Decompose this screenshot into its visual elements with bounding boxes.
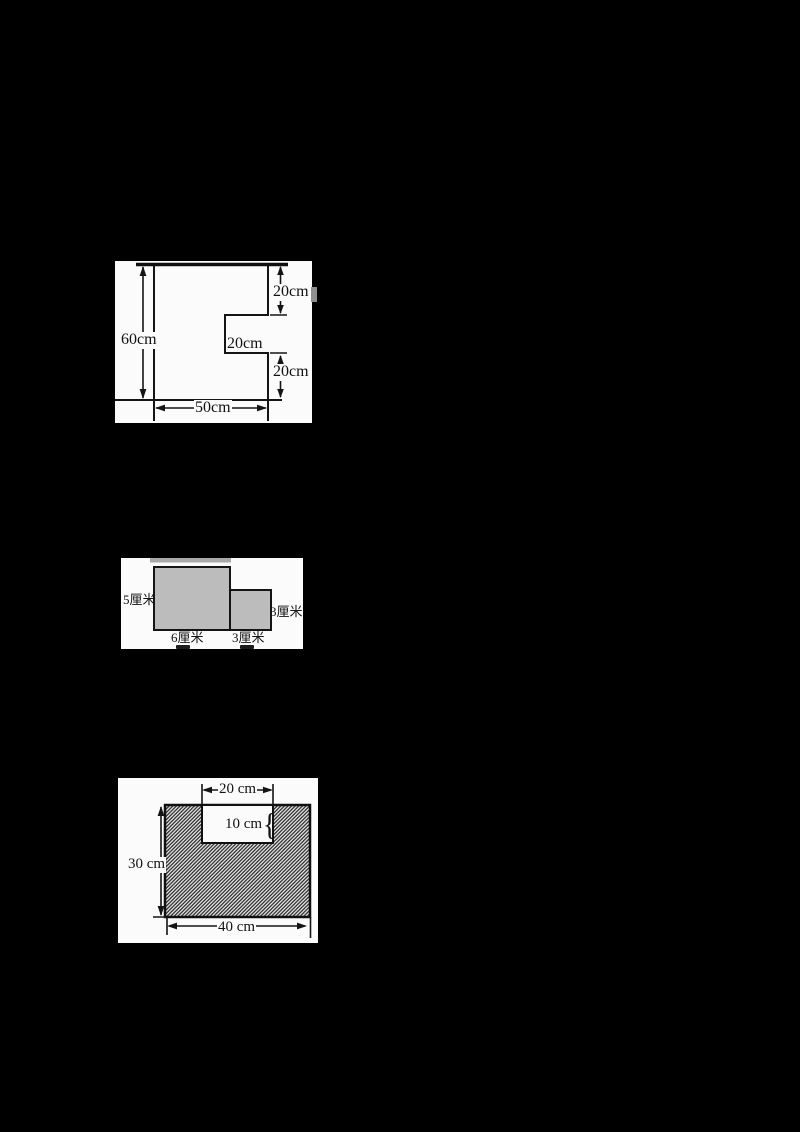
figure2-small-rect xyxy=(230,590,271,630)
figure3-label-40cm: 40 cm xyxy=(217,920,256,936)
figure1-label-20cm-top: 20cm xyxy=(272,284,310,301)
figure3-panel: 20 cm 10 cm { 30 cm 40 cm xyxy=(118,778,318,943)
figure2-label-3cm-bottom: 3厘米 xyxy=(232,631,265,645)
figure3-label-10cm: 10 cm xyxy=(225,817,262,833)
figure3-label-30cm: 30 cm xyxy=(127,857,166,873)
figure3-label-20cm: 20 cm xyxy=(218,782,257,798)
figure1-label-60cm: 60cm xyxy=(120,332,158,349)
figure3-brace: { xyxy=(263,806,277,842)
figure2-label-3cm-right: 3厘米 xyxy=(270,605,303,619)
scan-artifact-smudge xyxy=(311,287,317,302)
figure2-label-6cm-bottom: 6厘米 xyxy=(171,631,204,645)
figure1-label-20cm-notch: 20cm xyxy=(227,336,263,353)
figure1-label-50cm: 50cm xyxy=(194,400,232,417)
figure2-bottom-smudge-right xyxy=(240,645,254,649)
figure1-notch-ticks xyxy=(270,315,287,353)
scanned-worksheet-page: { "background": "#000000", "figure1": { … xyxy=(0,0,800,1132)
figure2-top-smudge xyxy=(150,558,231,563)
figure2-bottom-smudge-left xyxy=(176,645,190,649)
figure1-label-20cm-bottom: 20cm xyxy=(272,364,310,381)
figure2-label-5cm-left: 5厘米 xyxy=(123,593,156,607)
figure1-panel: 60cm 20cm 20cm 20cm 50cm xyxy=(115,261,312,423)
figure2-panel: 5厘米 3厘米 6厘米 3厘米 xyxy=(121,558,303,649)
figure2-large-rect xyxy=(154,567,230,630)
